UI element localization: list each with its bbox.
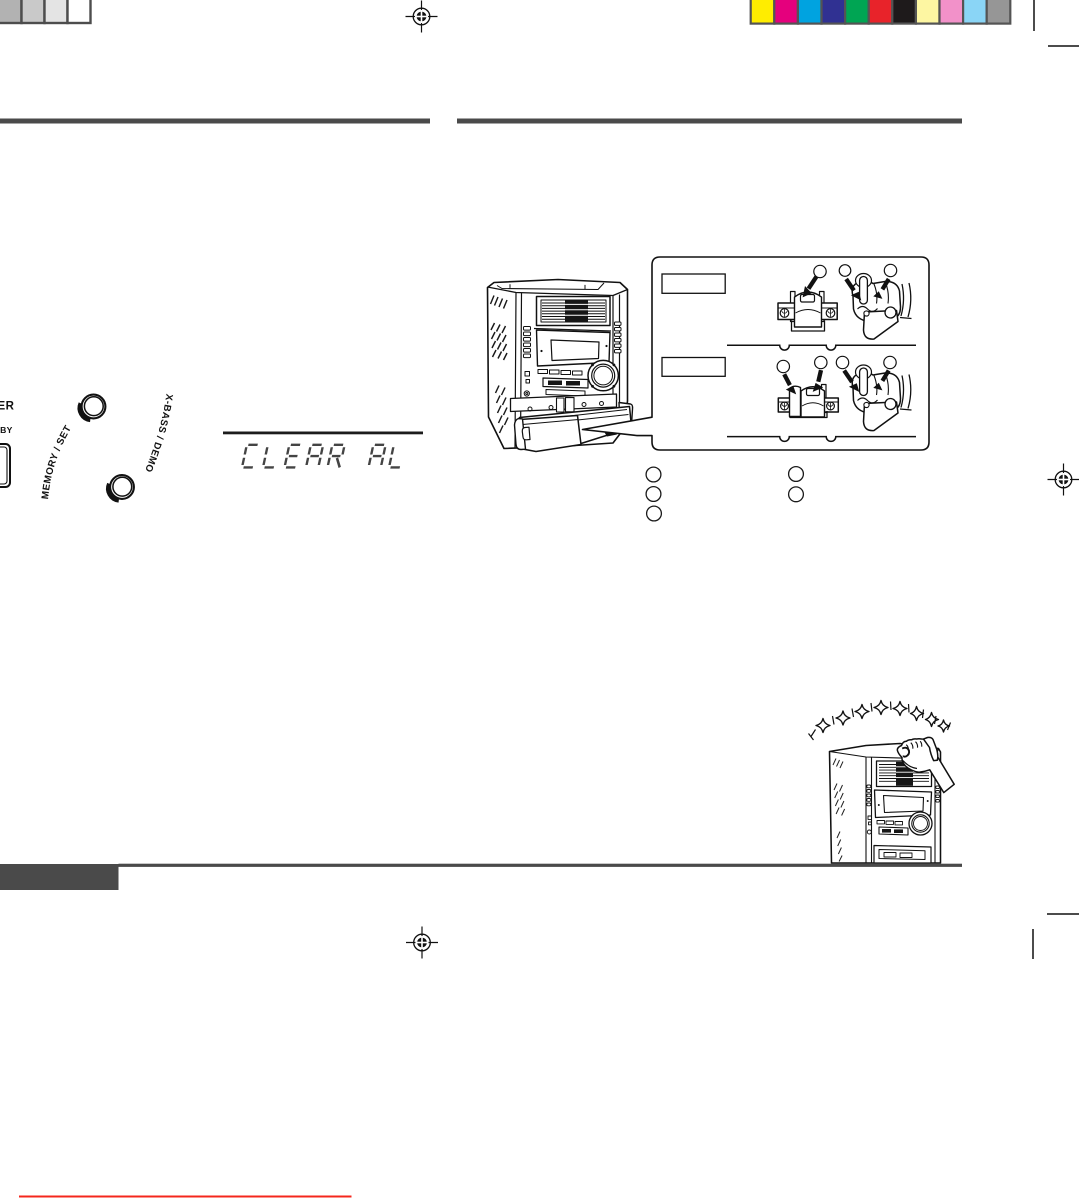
svg-text:MEMORY / SET: MEMORY / SET	[40, 424, 74, 500]
svg-text:X-BASS / DEMO: X-BASS / DEMO	[142, 393, 174, 474]
svg-text:-BY: -BY	[0, 425, 13, 435]
svg-text:ER: ER	[0, 400, 15, 412]
